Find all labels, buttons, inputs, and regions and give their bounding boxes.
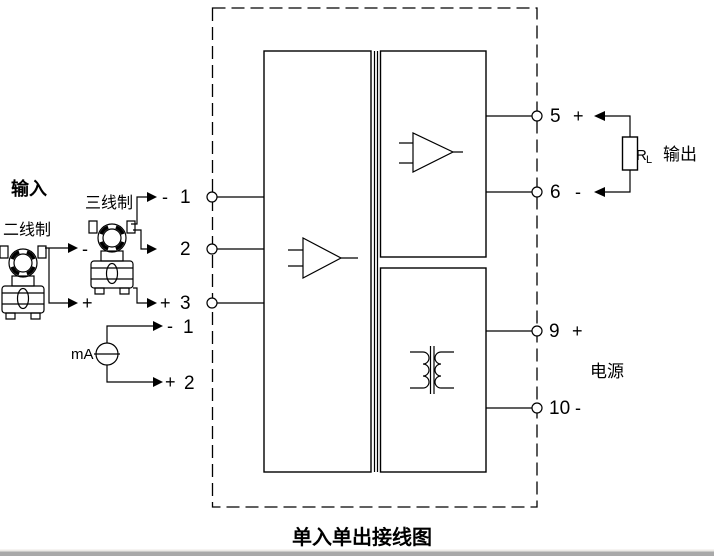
terminal-3-sign: + [160, 293, 171, 313]
three-wire-transmitter-wires [131, 192, 157, 308]
terminal-1-sign: - [162, 187, 168, 207]
arrow-right-icon [68, 243, 78, 253]
terminal-2-number: 2 [180, 239, 191, 260]
terminal-1-alt-number: 1 [183, 317, 194, 338]
terminal-6-circle [532, 187, 542, 197]
terminal-10-circle [532, 403, 542, 413]
load-resistor-subscript: L [646, 154, 652, 166]
three-wire-transmitter-icon [89, 221, 135, 294]
diagram-title: 单入单出接线图 [292, 525, 432, 549]
terminal-1-alt: - 1 [167, 316, 194, 338]
power-label: 电源 [590, 362, 624, 381]
arrow-right-icon [153, 377, 163, 387]
arrow-left-icon [594, 111, 605, 121]
two-wire-transmitter-icon [0, 246, 46, 319]
window-edge [0, 552, 714, 556]
wiring-diagram-page: - + mA - 1 2 + 3 - 1 [0, 0, 714, 556]
ma-source-icon [94, 321, 163, 387]
two-wire-label: 二线制 [3, 221, 51, 239]
terminal-2-alt-sign: + [165, 372, 176, 392]
terminal-9-circle [532, 326, 542, 336]
terminal-2-alt-number: 2 [184, 373, 195, 394]
two-wire-minus-sign: - [82, 239, 88, 259]
terminal-5-number: 5 [550, 106, 561, 127]
three-wire-label: 三线制 [85, 194, 133, 212]
arrow-right-icon [147, 192, 157, 202]
ma-label: mA [71, 346, 94, 363]
isolation-barrier [375, 51, 378, 472]
terminal-1-circle [207, 192, 217, 202]
terminal-10-number: 10 [549, 398, 570, 419]
power-supply-box [381, 268, 487, 472]
terminal-2-alt: + 2 [165, 372, 195, 394]
terminal-3-circle [207, 298, 217, 308]
arrow-right-icon [147, 298, 157, 308]
terminal-1-alt-sign: - [167, 316, 173, 336]
terminal-10: 10 - [486, 398, 581, 419]
load-circuit [594, 111, 638, 197]
output-label: 输出 [663, 145, 697, 164]
input-amplifier-box [264, 51, 371, 472]
arrow-right-icon [147, 244, 157, 254]
terminal-6-sign: - [575, 182, 581, 202]
terminal-6-number: 6 [550, 182, 561, 203]
terminal-9-sign: + [572, 321, 583, 341]
output-amplifier-box [381, 51, 487, 257]
terminal-2: 2 [180, 239, 264, 260]
terminal-10-sign: - [575, 398, 581, 418]
arrow-left-icon [594, 187, 605, 197]
terminal-9: 9 + [486, 321, 583, 342]
two-wire-plus-sign: + [82, 293, 93, 313]
terminal-3-number: 3 [180, 293, 191, 314]
terminal-5-circle [532, 111, 542, 121]
arrow-right-icon [153, 321, 163, 331]
two-wire-transmitter-wires [45, 243, 78, 308]
window-edge-light [0, 550, 714, 552]
terminal-5: 5 + [486, 106, 584, 127]
terminal-2-circle [207, 244, 217, 254]
terminal-9-number: 9 [549, 321, 560, 342]
terminal-5-sign: + [573, 106, 584, 126]
arrow-right-icon [68, 298, 78, 308]
wiring-diagram: - + mA - 1 2 + 3 - 1 [0, 0, 714, 556]
input-label: 输入 [11, 178, 47, 199]
terminal-6: 6 - [486, 182, 581, 203]
terminal-1-number: 1 [180, 187, 191, 208]
